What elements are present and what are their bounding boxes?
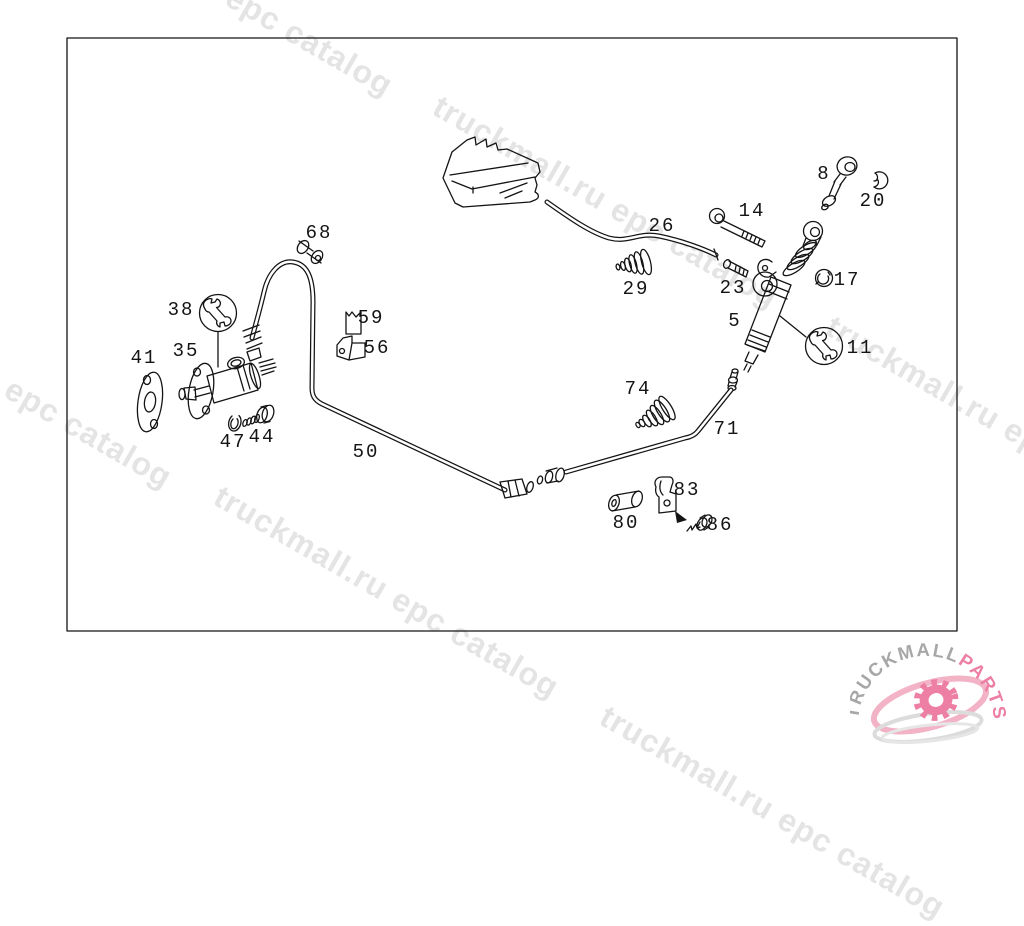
part-callout-47: 47: [220, 431, 247, 453]
part-callout-11: 11: [847, 337, 874, 359]
epc-catalog-diagram-page: { "watermark": { "text": "truckmall.ru e…: [0, 0, 1024, 750]
part-callout-68: 68: [306, 222, 333, 244]
part-callout-80: 80: [613, 512, 640, 534]
part-callout-5: 5: [728, 310, 741, 332]
bracket-56-drawing: [337, 336, 365, 360]
part-callout-14: 14: [739, 200, 766, 222]
hose-26-drawing: [547, 202, 718, 260]
fluid-reservoir-drawing: [443, 137, 540, 207]
part-callout-59: 59: [358, 307, 385, 329]
diagram-border-frame: [67, 38, 957, 631]
master-cylinder-drawing: [179, 355, 276, 420]
wrench-icon: [806, 328, 843, 365]
part-callout-74: 74: [625, 378, 652, 400]
part-callout-8: 8: [817, 163, 830, 185]
pointer-arrow-icon: [675, 511, 687, 523]
circlip-20-drawing: [874, 172, 888, 189]
part-callout-17: 17: [834, 269, 861, 291]
part-callout-29: 29: [623, 278, 650, 300]
part-callout-20: 20: [860, 190, 887, 212]
bolt-23-drawing: [722, 259, 748, 277]
part-callout-86: 86: [707, 514, 734, 536]
part-callout-26: 26: [649, 215, 676, 237]
pipe-50-drawing: [243, 262, 535, 498]
clutch-hydraulics-parts-diagram: [0, 0, 1024, 750]
truckmallparts-logo: TRUCKMALLPARTS: [850, 643, 1022, 749]
pipe-union-fitting-drawing: [537, 467, 566, 484]
part-callout-35: 35: [173, 340, 200, 362]
gasket-41-drawing: [134, 371, 166, 434]
boot-29-drawing: [615, 248, 653, 275]
pipe-71-drawing: [566, 390, 731, 472]
part-callout-41: 41: [131, 347, 158, 369]
part-callout-71: 71: [714, 418, 741, 440]
part-callout-23: 23: [720, 277, 747, 299]
bolt-44-drawing: [242, 404, 276, 427]
part-callout-38: 38: [168, 299, 195, 321]
washer-47-drawing: [229, 416, 241, 431]
part-callout-44: 44: [249, 426, 276, 448]
part-callout-56: 56: [364, 337, 391, 359]
spacer-80-drawing: [607, 490, 644, 512]
wrench-icon: [200, 295, 237, 332]
part-callout-83: 83: [674, 479, 701, 501]
part-callout-50: 50: [353, 441, 380, 463]
pipe-71-top-fitting-drawing: [728, 369, 738, 391]
nut-17-drawing: [816, 270, 833, 287]
